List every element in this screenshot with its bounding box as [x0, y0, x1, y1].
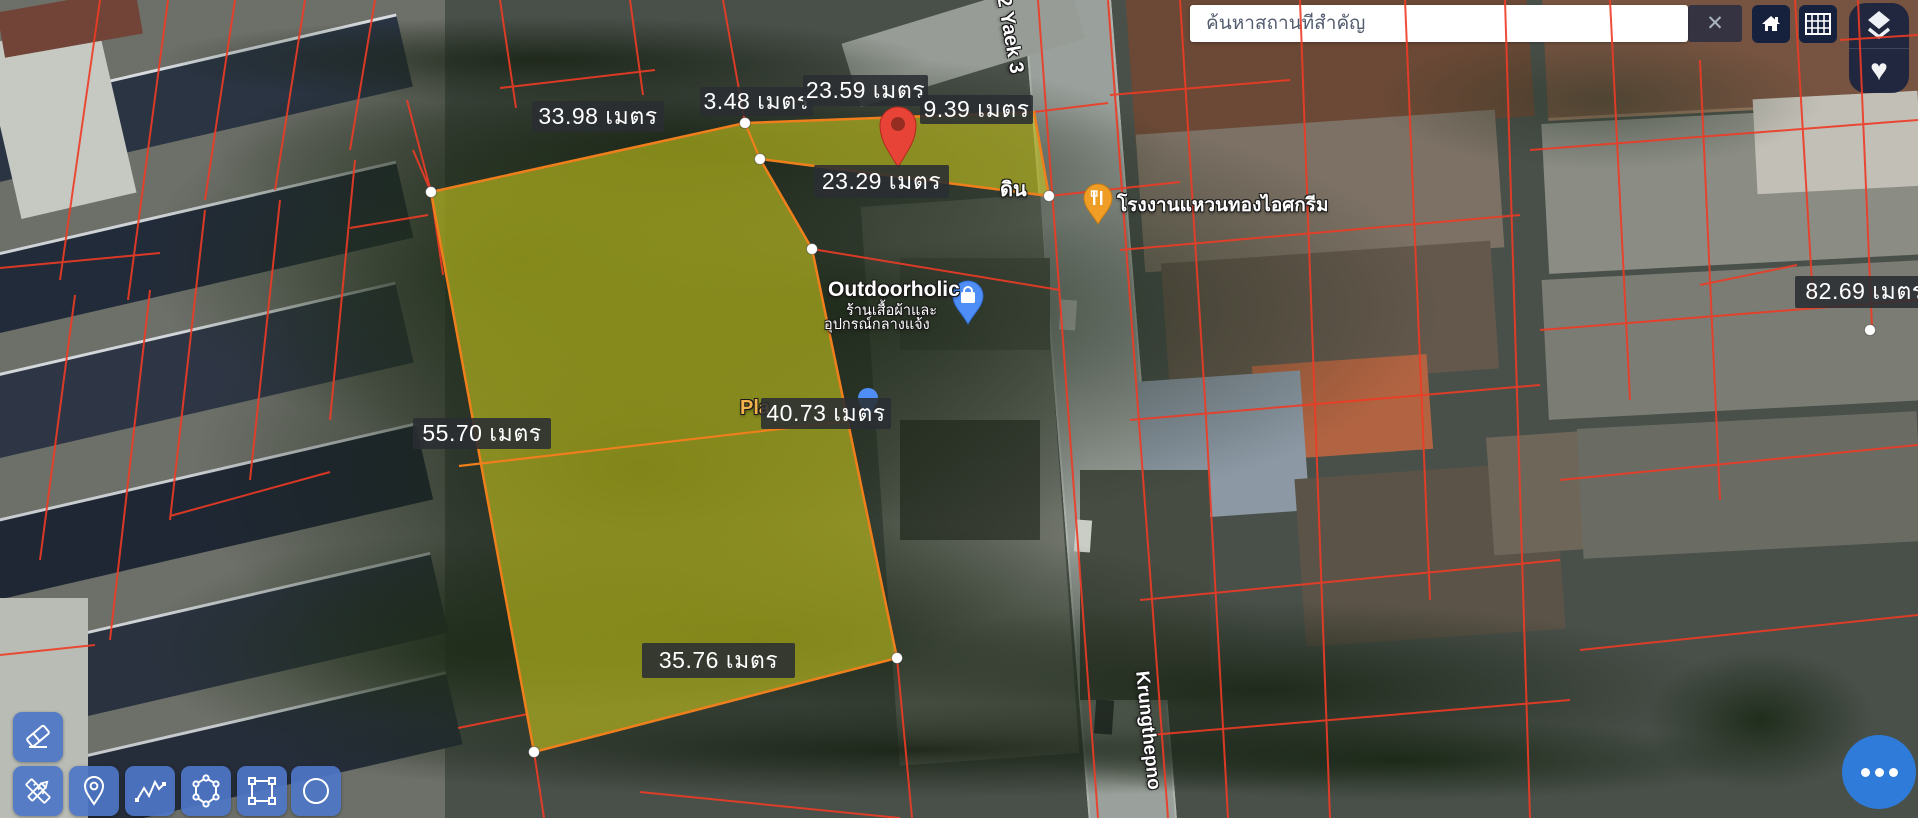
occluded-label-fragment: ดิน [1000, 173, 1027, 205]
dot-icon [1875, 768, 1884, 777]
poi-label-factory[interactable]: โรงงานแหวนทองไอศกรีม [1117, 190, 1329, 220]
more-options-button[interactable] [1842, 735, 1916, 809]
poi-subtitle: อุปกรณ์กลางแจ้ง [824, 313, 930, 336]
map-app: Outdoorholic ร้านเสื้อผ้าและ อุปกรณ์กลาง… [0, 0, 1918, 818]
measurement-label: 3.48 เมตร [700, 87, 813, 116]
measurement-label: 35.76 เมตร [642, 643, 795, 678]
measurement-label: 55.70 เมตร [413, 418, 551, 449]
dot-icon [1889, 768, 1898, 777]
measurement-label: 23.59 เมตร [803, 75, 928, 106]
measurement-label: 9.39 เมตร [920, 95, 1033, 124]
dot-icon [1861, 768, 1870, 777]
measurement-label: 23.29 เมตร [814, 165, 949, 198]
restaurant-poi-icon[interactable] [1084, 184, 1112, 224]
measurement-label: 82.69 เมตร [1795, 276, 1918, 308]
measurement-label: 40.73 เมตร [761, 398, 891, 429]
measurement-label: 33.98 เมตร [532, 101, 664, 132]
